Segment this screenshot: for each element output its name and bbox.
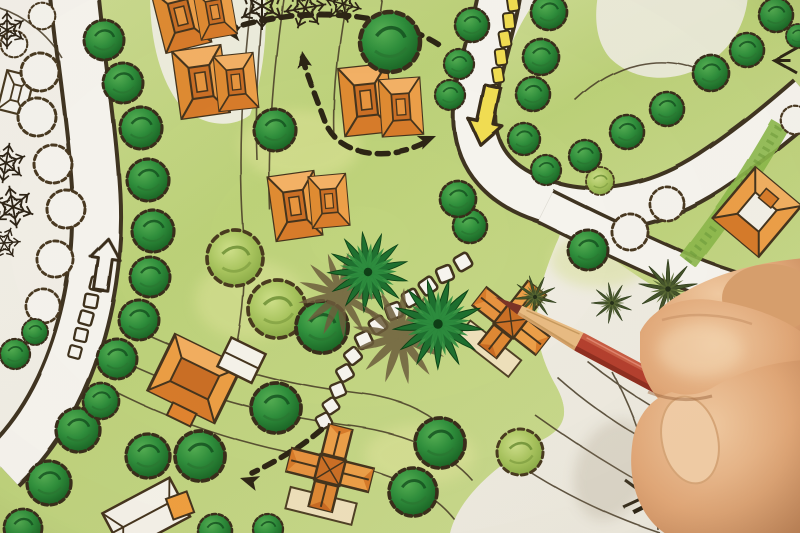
photo-vignette bbox=[0, 0, 800, 533]
photo-of-site-plan bbox=[0, 0, 800, 533]
site-plan-drawing bbox=[0, 0, 800, 533]
